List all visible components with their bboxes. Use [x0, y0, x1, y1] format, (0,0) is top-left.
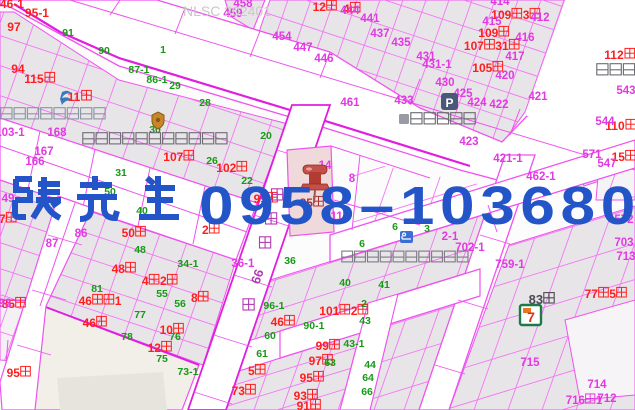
- svg-text:107: 107: [464, 39, 484, 53]
- svg-text:6: 6: [359, 238, 365, 250]
- svg-text:46: 46: [79, 294, 93, 308]
- svg-text:90: 90: [98, 45, 110, 57]
- svg-text:20: 20: [260, 130, 272, 142]
- svg-text:703: 703: [614, 237, 633, 249]
- svg-text:43-1: 43-1: [343, 338, 364, 350]
- svg-text:112: 112: [604, 48, 624, 62]
- svg-text:78: 78: [121, 331, 133, 343]
- svg-text:454: 454: [272, 31, 292, 43]
- svg-text:95: 95: [300, 371, 314, 385]
- svg-text:702-1: 702-1: [455, 242, 485, 254]
- svg-text:2: 2: [351, 304, 358, 318]
- svg-text:433: 433: [394, 95, 413, 107]
- svg-text:716: 716: [566, 395, 585, 407]
- svg-text:95-1: 95-1: [25, 6, 49, 20]
- svg-text:759-1: 759-1: [495, 259, 525, 271]
- svg-text:63: 63: [324, 357, 336, 369]
- svg-text:444: 444: [340, 5, 360, 17]
- svg-text:5: 5: [609, 287, 616, 301]
- svg-text:441: 441: [360, 13, 380, 25]
- svg-text:93: 93: [0, 298, 11, 310]
- svg-text:8: 8: [191, 291, 198, 305]
- svg-text:3: 3: [523, 8, 530, 22]
- svg-text:4: 4: [142, 274, 149, 288]
- svg-text:414: 414: [490, 0, 510, 8]
- svg-text:446: 446: [314, 53, 333, 65]
- svg-text:7: 7: [527, 309, 535, 325]
- svg-text:715: 715: [520, 357, 540, 369]
- svg-text:544: 544: [595, 116, 615, 128]
- svg-text:99: 99: [316, 339, 330, 353]
- svg-text:416: 416: [515, 32, 534, 44]
- svg-text:29: 29: [169, 80, 181, 92]
- svg-text:91: 91: [62, 27, 74, 39]
- svg-text:46: 46: [271, 315, 285, 329]
- svg-text:107: 107: [163, 150, 183, 164]
- svg-text:94: 94: [11, 62, 25, 76]
- svg-text:76: 76: [169, 331, 181, 343]
- svg-text:P: P: [445, 96, 453, 110]
- svg-text:96-1: 96-1: [263, 300, 284, 312]
- svg-text:95: 95: [7, 366, 21, 380]
- svg-text:103-1: 103-1: [0, 127, 25, 139]
- svg-text:43: 43: [359, 315, 371, 327]
- svg-text:77: 77: [585, 287, 599, 301]
- svg-text:423: 423: [459, 136, 478, 148]
- svg-text:447: 447: [293, 42, 312, 54]
- svg-text:46: 46: [83, 316, 97, 330]
- svg-text:97: 97: [7, 20, 21, 34]
- svg-text:461: 461: [340, 97, 360, 109]
- svg-text:105: 105: [472, 61, 492, 75]
- svg-text:97: 97: [309, 354, 323, 368]
- svg-text:86-1: 86-1: [146, 74, 167, 86]
- svg-text:547: 547: [597, 158, 616, 170]
- svg-text:55: 55: [156, 288, 168, 300]
- svg-text:2: 2: [361, 298, 367, 310]
- svg-text:64: 64: [362, 372, 374, 384]
- svg-text:714: 714: [587, 379, 607, 391]
- svg-text:66: 66: [361, 386, 373, 398]
- svg-text:60: 60: [264, 330, 276, 342]
- svg-text:40: 40: [339, 277, 351, 289]
- svg-text:168: 168: [47, 127, 67, 139]
- svg-text:415: 415: [482, 16, 502, 28]
- svg-text:421: 421: [528, 91, 548, 103]
- svg-text:34-1: 34-1: [177, 258, 198, 270]
- svg-text:41: 41: [378, 279, 390, 291]
- svg-text:73: 73: [232, 384, 246, 398]
- svg-text:7: 7: [0, 212, 6, 226]
- svg-text:36: 36: [284, 255, 296, 267]
- svg-text:1: 1: [596, 395, 603, 407]
- svg-text:1: 1: [115, 294, 122, 308]
- svg-text:437: 437: [370, 28, 389, 40]
- svg-text:435: 435: [391, 37, 411, 49]
- svg-text:115: 115: [24, 72, 44, 86]
- svg-text:NLSC 202401: NLSC 202401: [183, 3, 271, 19]
- svg-text:90-1: 90-1: [303, 320, 324, 332]
- svg-text:101: 101: [319, 304, 339, 318]
- svg-text:46-1: 46-1: [0, 0, 24, 11]
- svg-text:48: 48: [134, 244, 146, 256]
- svg-text:56: 56: [174, 298, 186, 310]
- svg-text:26: 26: [206, 155, 218, 167]
- svg-text:12: 12: [313, 0, 327, 14]
- svg-text:417: 417: [505, 51, 524, 63]
- svg-text:102: 102: [216, 161, 236, 175]
- svg-text:75: 75: [156, 353, 168, 365]
- svg-text:109: 109: [478, 26, 498, 40]
- svg-text:5: 5: [248, 364, 255, 378]
- svg-text:713: 713: [616, 251, 635, 263]
- svg-text:424: 424: [467, 97, 487, 109]
- svg-text:543: 543: [616, 85, 635, 97]
- svg-text:431-1: 431-1: [422, 59, 452, 71]
- svg-text:77: 77: [134, 309, 146, 321]
- svg-text:87: 87: [46, 238, 59, 250]
- svg-text:81: 81: [91, 283, 103, 295]
- svg-text:73-1: 73-1: [177, 366, 198, 378]
- svg-text:50: 50: [122, 226, 136, 240]
- svg-text:31: 31: [115, 167, 127, 179]
- svg-text:28: 28: [199, 97, 211, 109]
- svg-text:421-1: 421-1: [493, 153, 523, 165]
- svg-text:86: 86: [75, 228, 88, 240]
- svg-text:430: 430: [435, 77, 454, 89]
- svg-text:166: 166: [25, 156, 44, 168]
- svg-text:44: 44: [364, 359, 376, 371]
- svg-text:0958–103680: 0958–103680: [199, 176, 635, 236]
- svg-text:412: 412: [530, 12, 549, 24]
- svg-text:91: 91: [297, 399, 311, 410]
- svg-text:2: 2: [160, 274, 167, 288]
- svg-text:61: 61: [256, 348, 268, 360]
- svg-text:422: 422: [489, 99, 508, 111]
- svg-text:1: 1: [160, 44, 166, 56]
- svg-text:48: 48: [112, 262, 126, 276]
- svg-text:420: 420: [495, 70, 514, 82]
